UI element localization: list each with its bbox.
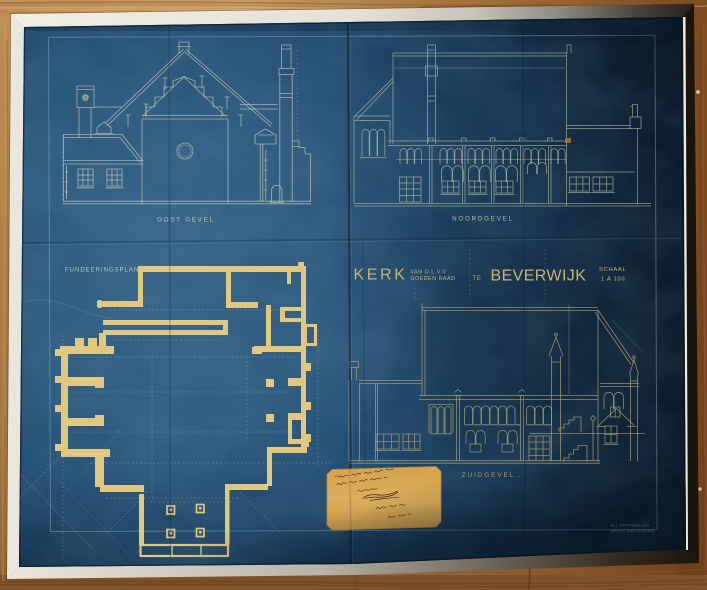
svg-text:TE: TE [473, 276, 482, 282]
svg-text:OOST GEVEL: OOST GEVEL [157, 217, 215, 224]
svg-text:BEVERWIJK: BEVERWIJK [491, 268, 587, 285]
svg-text:NOORDGEVEL: NOORDGEVEL [452, 216, 514, 223]
svg-text:VAN O.L.V.V: VAN O.L.V.V [411, 270, 447, 276]
svg-text:1 A 100.: 1 A 100. [601, 277, 628, 283]
svg-text:KERK: KERK [354, 267, 408, 284]
svg-text:FUNDEERINGSPLAN: FUNDEERINGSPLAN [65, 268, 139, 274]
svg-text:SCHAAL: SCHAAL [599, 267, 626, 273]
svg-text:GOEDEN RAAD: GOEDEN RAAD [411, 276, 456, 282]
